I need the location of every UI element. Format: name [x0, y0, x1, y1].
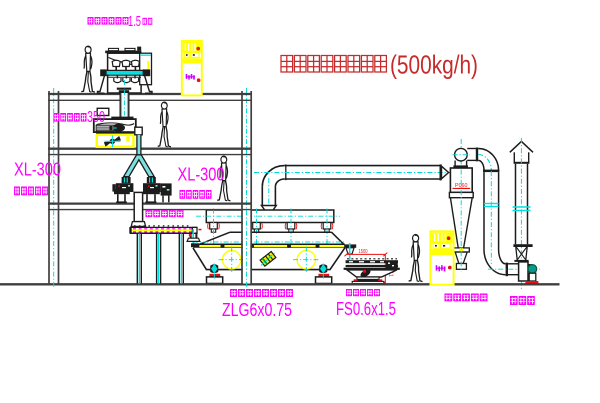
svg-text:1.5: 1.5 [128, 13, 141, 30]
svg-text:350: 350 [87, 109, 105, 126]
svg-text:1500: 1500 [359, 249, 368, 255]
svg-text:ZLG6x0.75: ZLG6x0.75 [222, 299, 292, 320]
svg-text:FS0.6x1.5: FS0.6x1.5 [336, 299, 396, 319]
svg-text:XL-300: XL-300 [14, 159, 61, 180]
svg-text:XL-300: XL-300 [178, 164, 225, 185]
svg-text:(500kg/h): (500kg/h) [390, 50, 478, 80]
